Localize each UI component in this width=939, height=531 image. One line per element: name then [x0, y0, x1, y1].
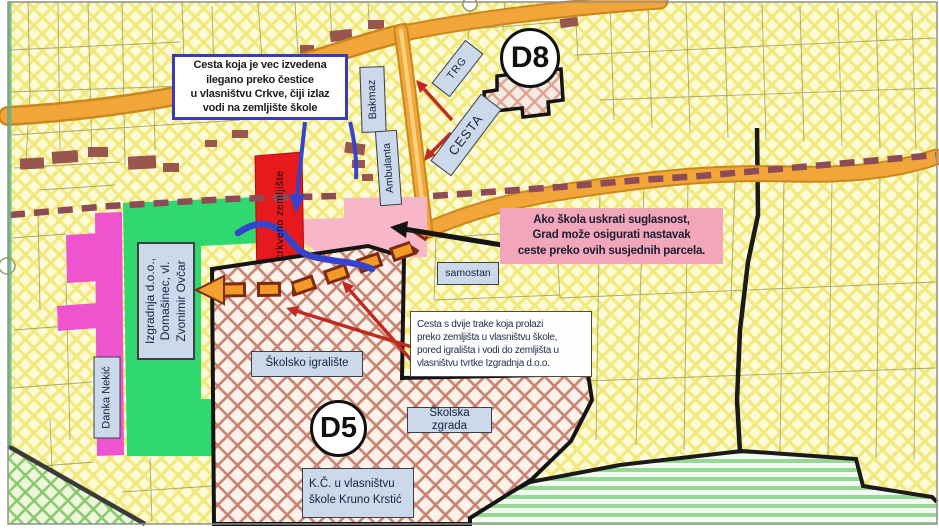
label-danka-nekic: Danka Nekić: [94, 357, 121, 439]
magenta-parcel-2: [57, 303, 98, 331]
label-bakmaz: Bakmaz: [359, 66, 386, 133]
zone-circle-d5: D5: [310, 400, 367, 457]
label-izgradnja-owner: Izgradnja d.o.o., Domašinec, vl. Zvonimi…: [137, 242, 195, 360]
label-school-building: Školska zgrada: [407, 407, 492, 433]
label-school-parcel: K.Č. u vlasništvu škole Kruno Krstić: [302, 468, 414, 518]
label-church-land: crkveno zemljište: [270, 155, 290, 275]
zone-circle-d8: D8: [500, 28, 560, 88]
label-samostan: samostan: [437, 262, 499, 285]
planning-map: Cesta koja je vec izvedena ilegano preko…: [0, 0, 939, 531]
label-school-playground: Školsko igralište: [251, 351, 363, 377]
note-two-lane-road: Cesta s dvije trake koja prolazi preko z…: [410, 311, 592, 377]
note-illegal-road: Cesta koja je vec izvedena ilegano preko…: [172, 54, 348, 120]
magenta-parcel: [66, 233, 101, 283]
note-city-fallback: Ako škola uskrati suglasnost, Grad može …: [500, 208, 723, 264]
